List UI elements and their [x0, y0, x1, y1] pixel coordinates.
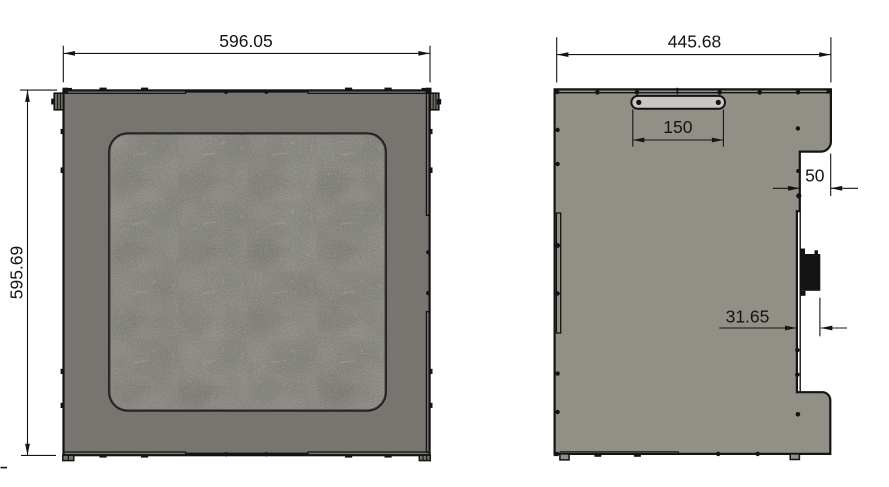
svg-text:596.05: 596.05: [219, 31, 273, 51]
svg-text:31.65: 31.65: [726, 307, 770, 327]
svg-text:150: 150: [663, 117, 692, 137]
svg-text:50: 50: [805, 166, 825, 186]
svg-text:595.69: 595.69: [7, 246, 27, 300]
svg-text:445.68: 445.68: [668, 32, 722, 52]
